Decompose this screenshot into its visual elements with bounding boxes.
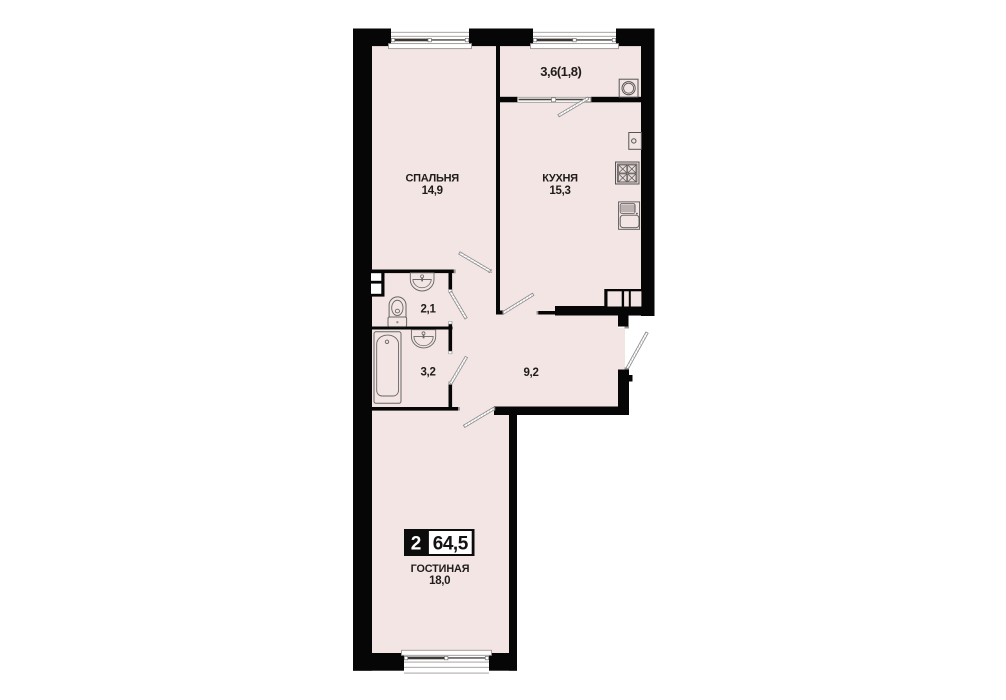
svg-text:15,3: 15,3 <box>549 185 570 197</box>
svg-text:ГОСТИНАЯ: ГОСТИНАЯ <box>411 563 470 575</box>
svg-text:СПАЛЬНЯ: СПАЛЬНЯ <box>406 173 460 185</box>
svg-text:2: 2 <box>411 534 422 555</box>
svg-text:14,9: 14,9 <box>422 185 443 197</box>
svg-text:3,6(1,8): 3,6(1,8) <box>540 64 581 79</box>
svg-text:64,5: 64,5 <box>433 534 469 555</box>
svg-text:18,0: 18,0 <box>429 575 450 587</box>
svg-text:2,1: 2,1 <box>420 303 436 315</box>
svg-text:КУХНЯ: КУХНЯ <box>542 173 578 185</box>
svg-text:3,2: 3,2 <box>420 366 435 378</box>
svg-text:9,2: 9,2 <box>523 367 538 379</box>
